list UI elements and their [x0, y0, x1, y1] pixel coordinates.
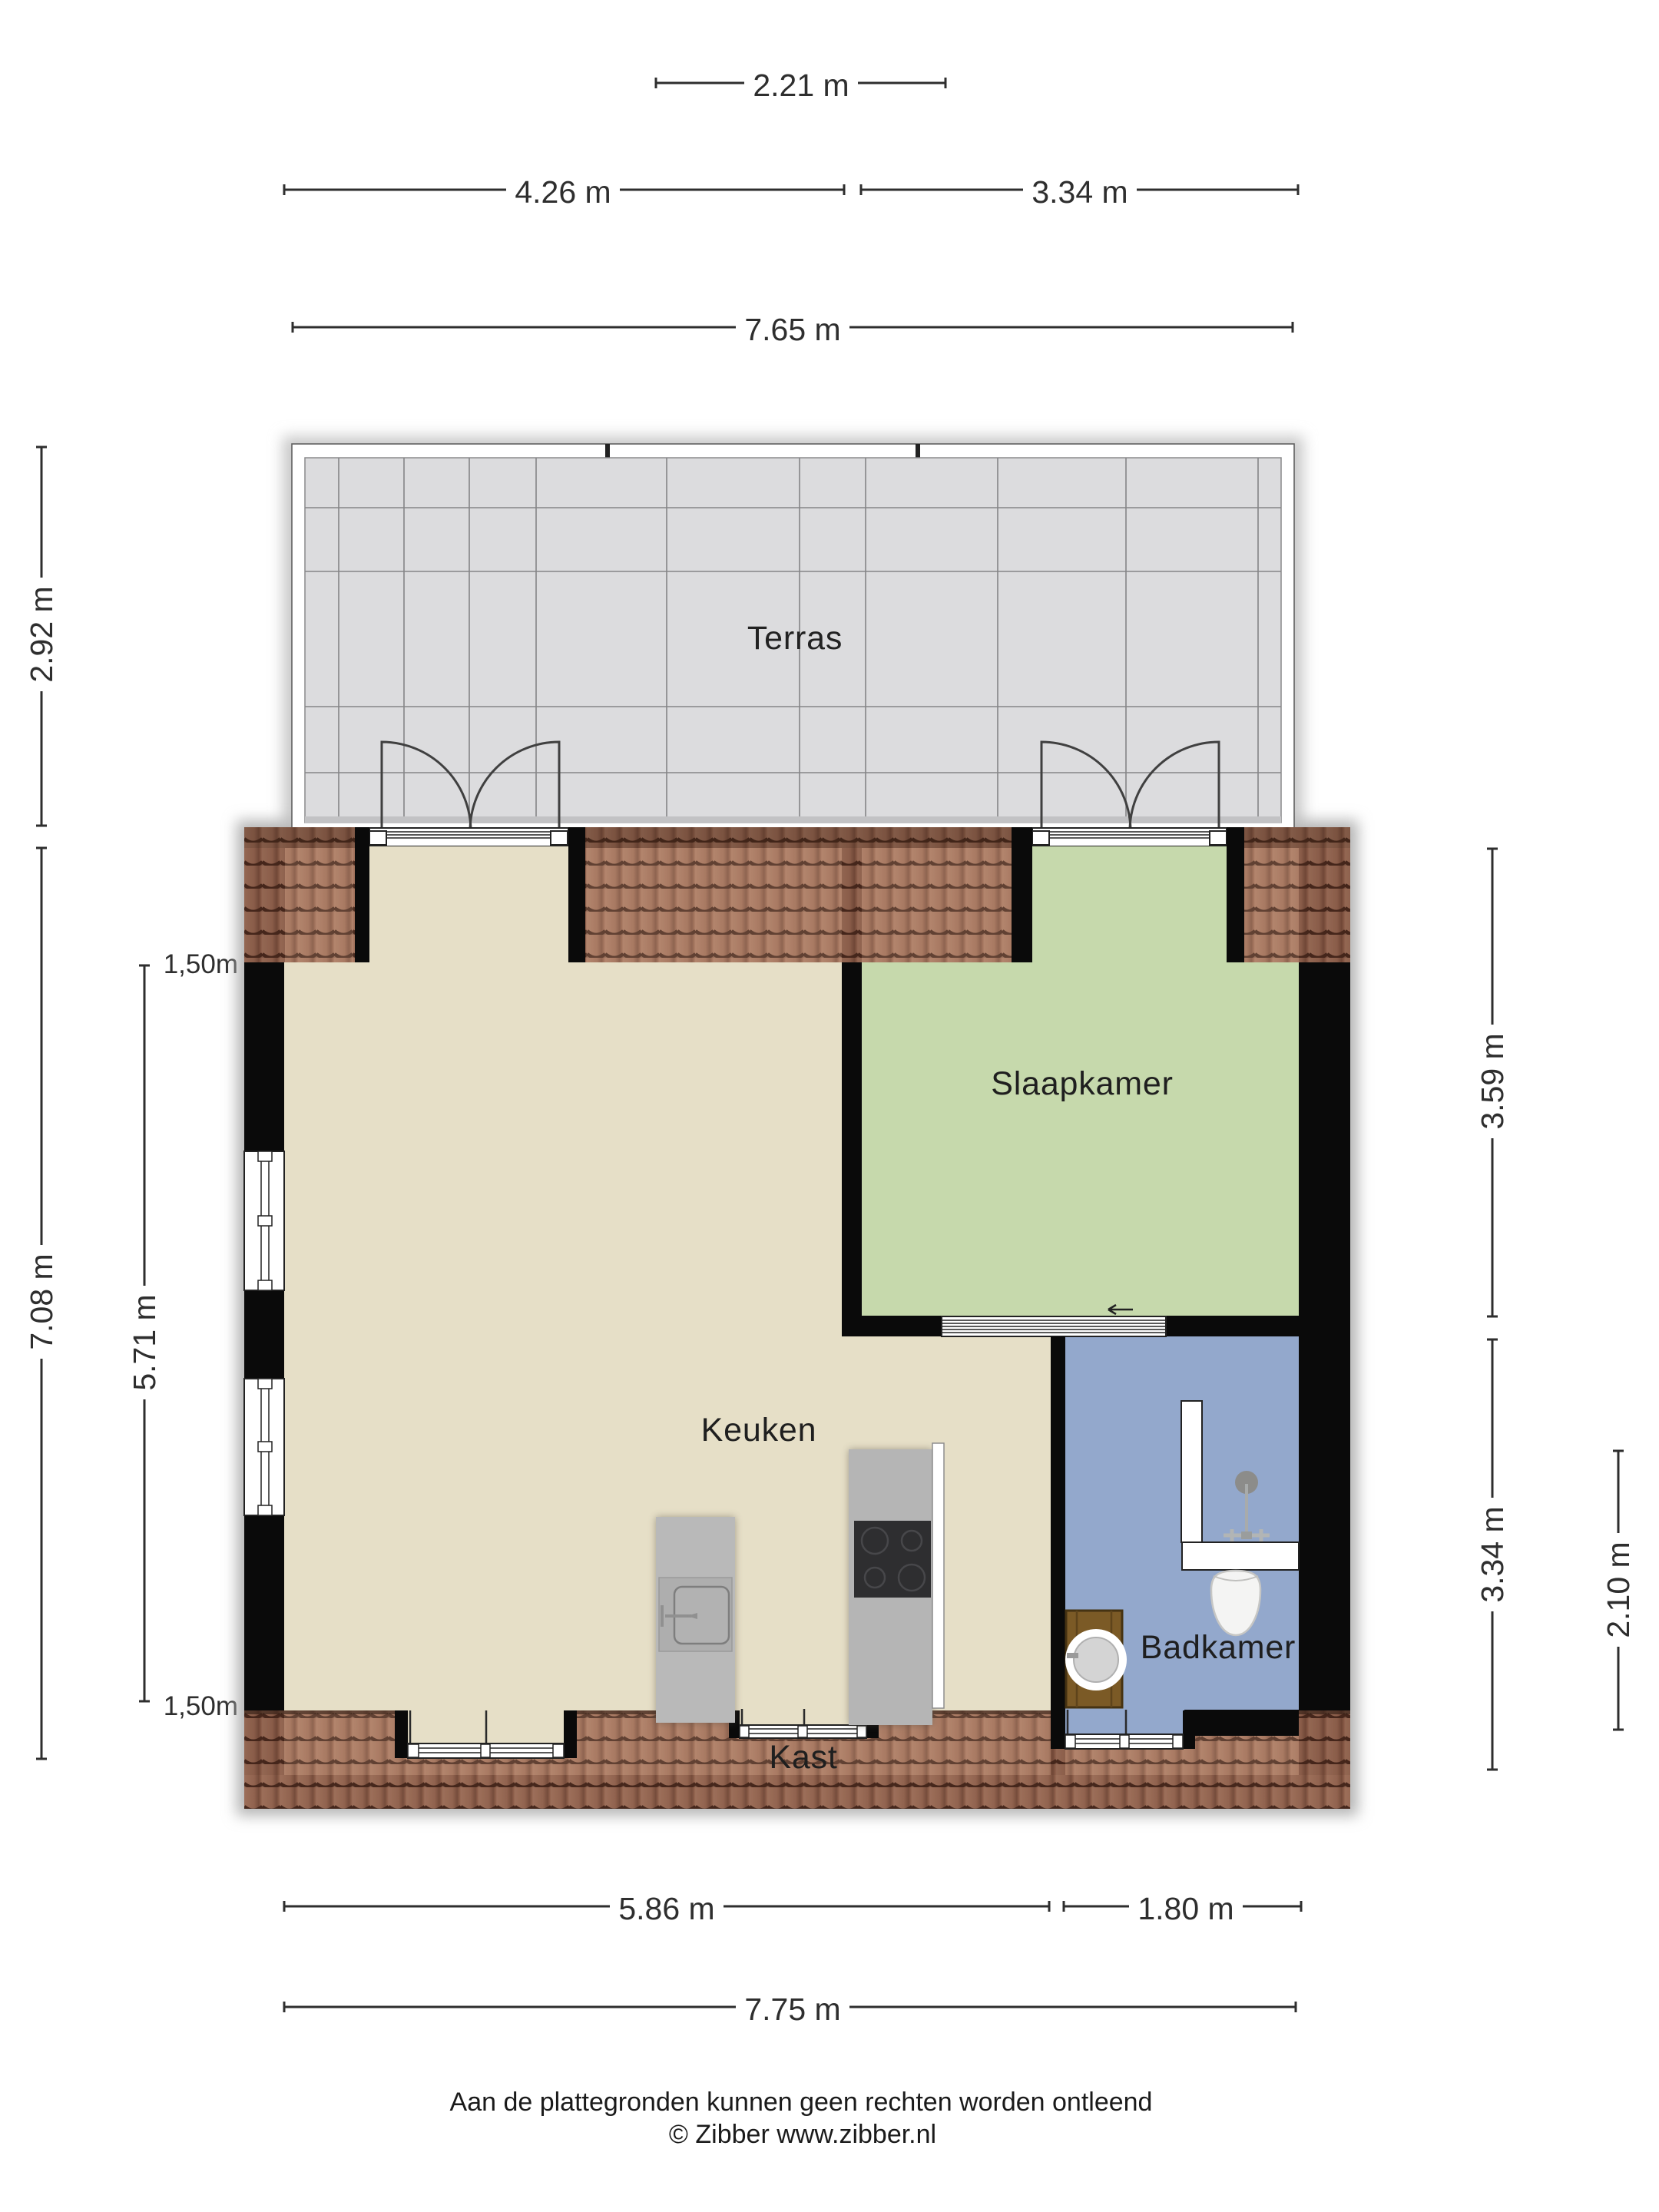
svg-text:Terras: Terras	[747, 620, 843, 657]
svg-text:3.34 m: 3.34 m	[1031, 174, 1128, 210]
svg-text:4.26 m: 4.26 m	[515, 174, 611, 210]
svg-text:1.80 m: 1.80 m	[1137, 1891, 1233, 1926]
svg-text:7.65 m: 7.65 m	[744, 312, 840, 347]
svg-text:Badkamer: Badkamer	[1141, 1629, 1296, 1666]
svg-text:2.21 m: 2.21 m	[753, 68, 849, 103]
svg-text:7.75 m: 7.75 m	[744, 1992, 840, 2027]
svg-text:Slaapkamer: Slaapkamer	[991, 1065, 1173, 1102]
svg-text:2.92 m: 2.92 m	[24, 586, 59, 682]
svg-text:1,50m: 1,50m	[164, 949, 238, 979]
svg-text:5.86 m: 5.86 m	[618, 1891, 714, 1926]
svg-text:3.34 m: 3.34 m	[1475, 1506, 1510, 1602]
svg-text:Kast: Kast	[769, 1739, 837, 1776]
svg-text:2.10 m: 2.10 m	[1601, 1541, 1636, 1637]
svg-text:© Zibber www.zibber.nl: © Zibber www.zibber.nl	[669, 2120, 936, 2149]
svg-text:Keuken: Keuken	[701, 1412, 817, 1449]
svg-text:7.08 m: 7.08 m	[24, 1253, 59, 1349]
svg-text:Aan de plattegronden kunnen ge: Aan de plattegronden kunnen geen rechten…	[450, 2088, 1153, 2117]
svg-text:1,50m: 1,50m	[164, 1691, 238, 1721]
svg-text:5.71 m: 5.71 m	[127, 1294, 162, 1390]
svg-text:3.59 m: 3.59 m	[1475, 1033, 1510, 1129]
